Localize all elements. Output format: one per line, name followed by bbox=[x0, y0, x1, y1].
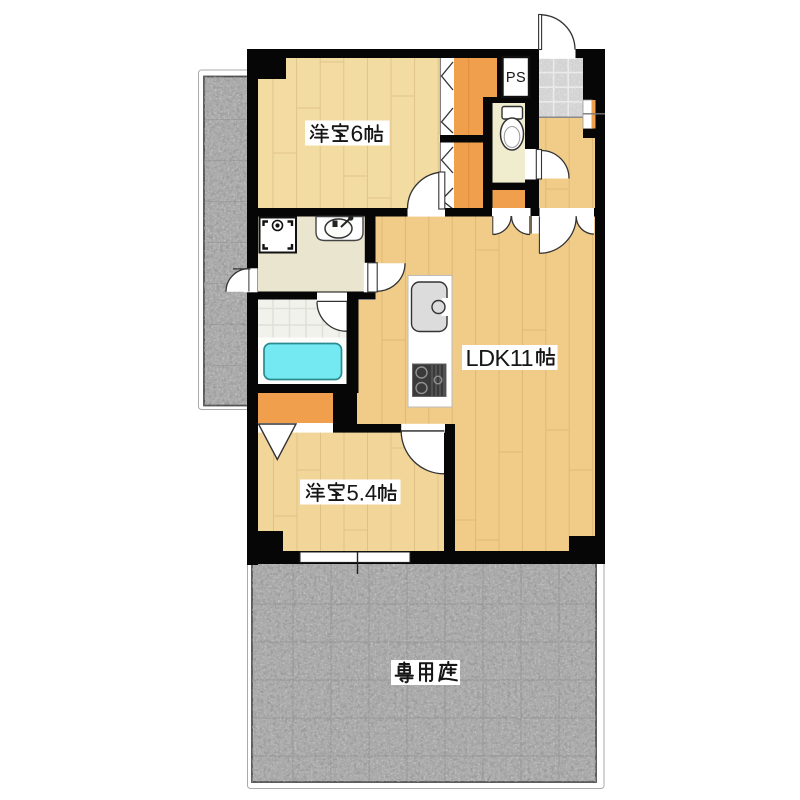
svg-text:LDK11: LDK11 bbox=[466, 345, 534, 371]
svg-text:6: 6 bbox=[351, 121, 364, 147]
svg-text:5.4: 5.4 bbox=[347, 481, 378, 506]
svg-text:PS: PS bbox=[506, 70, 526, 86]
